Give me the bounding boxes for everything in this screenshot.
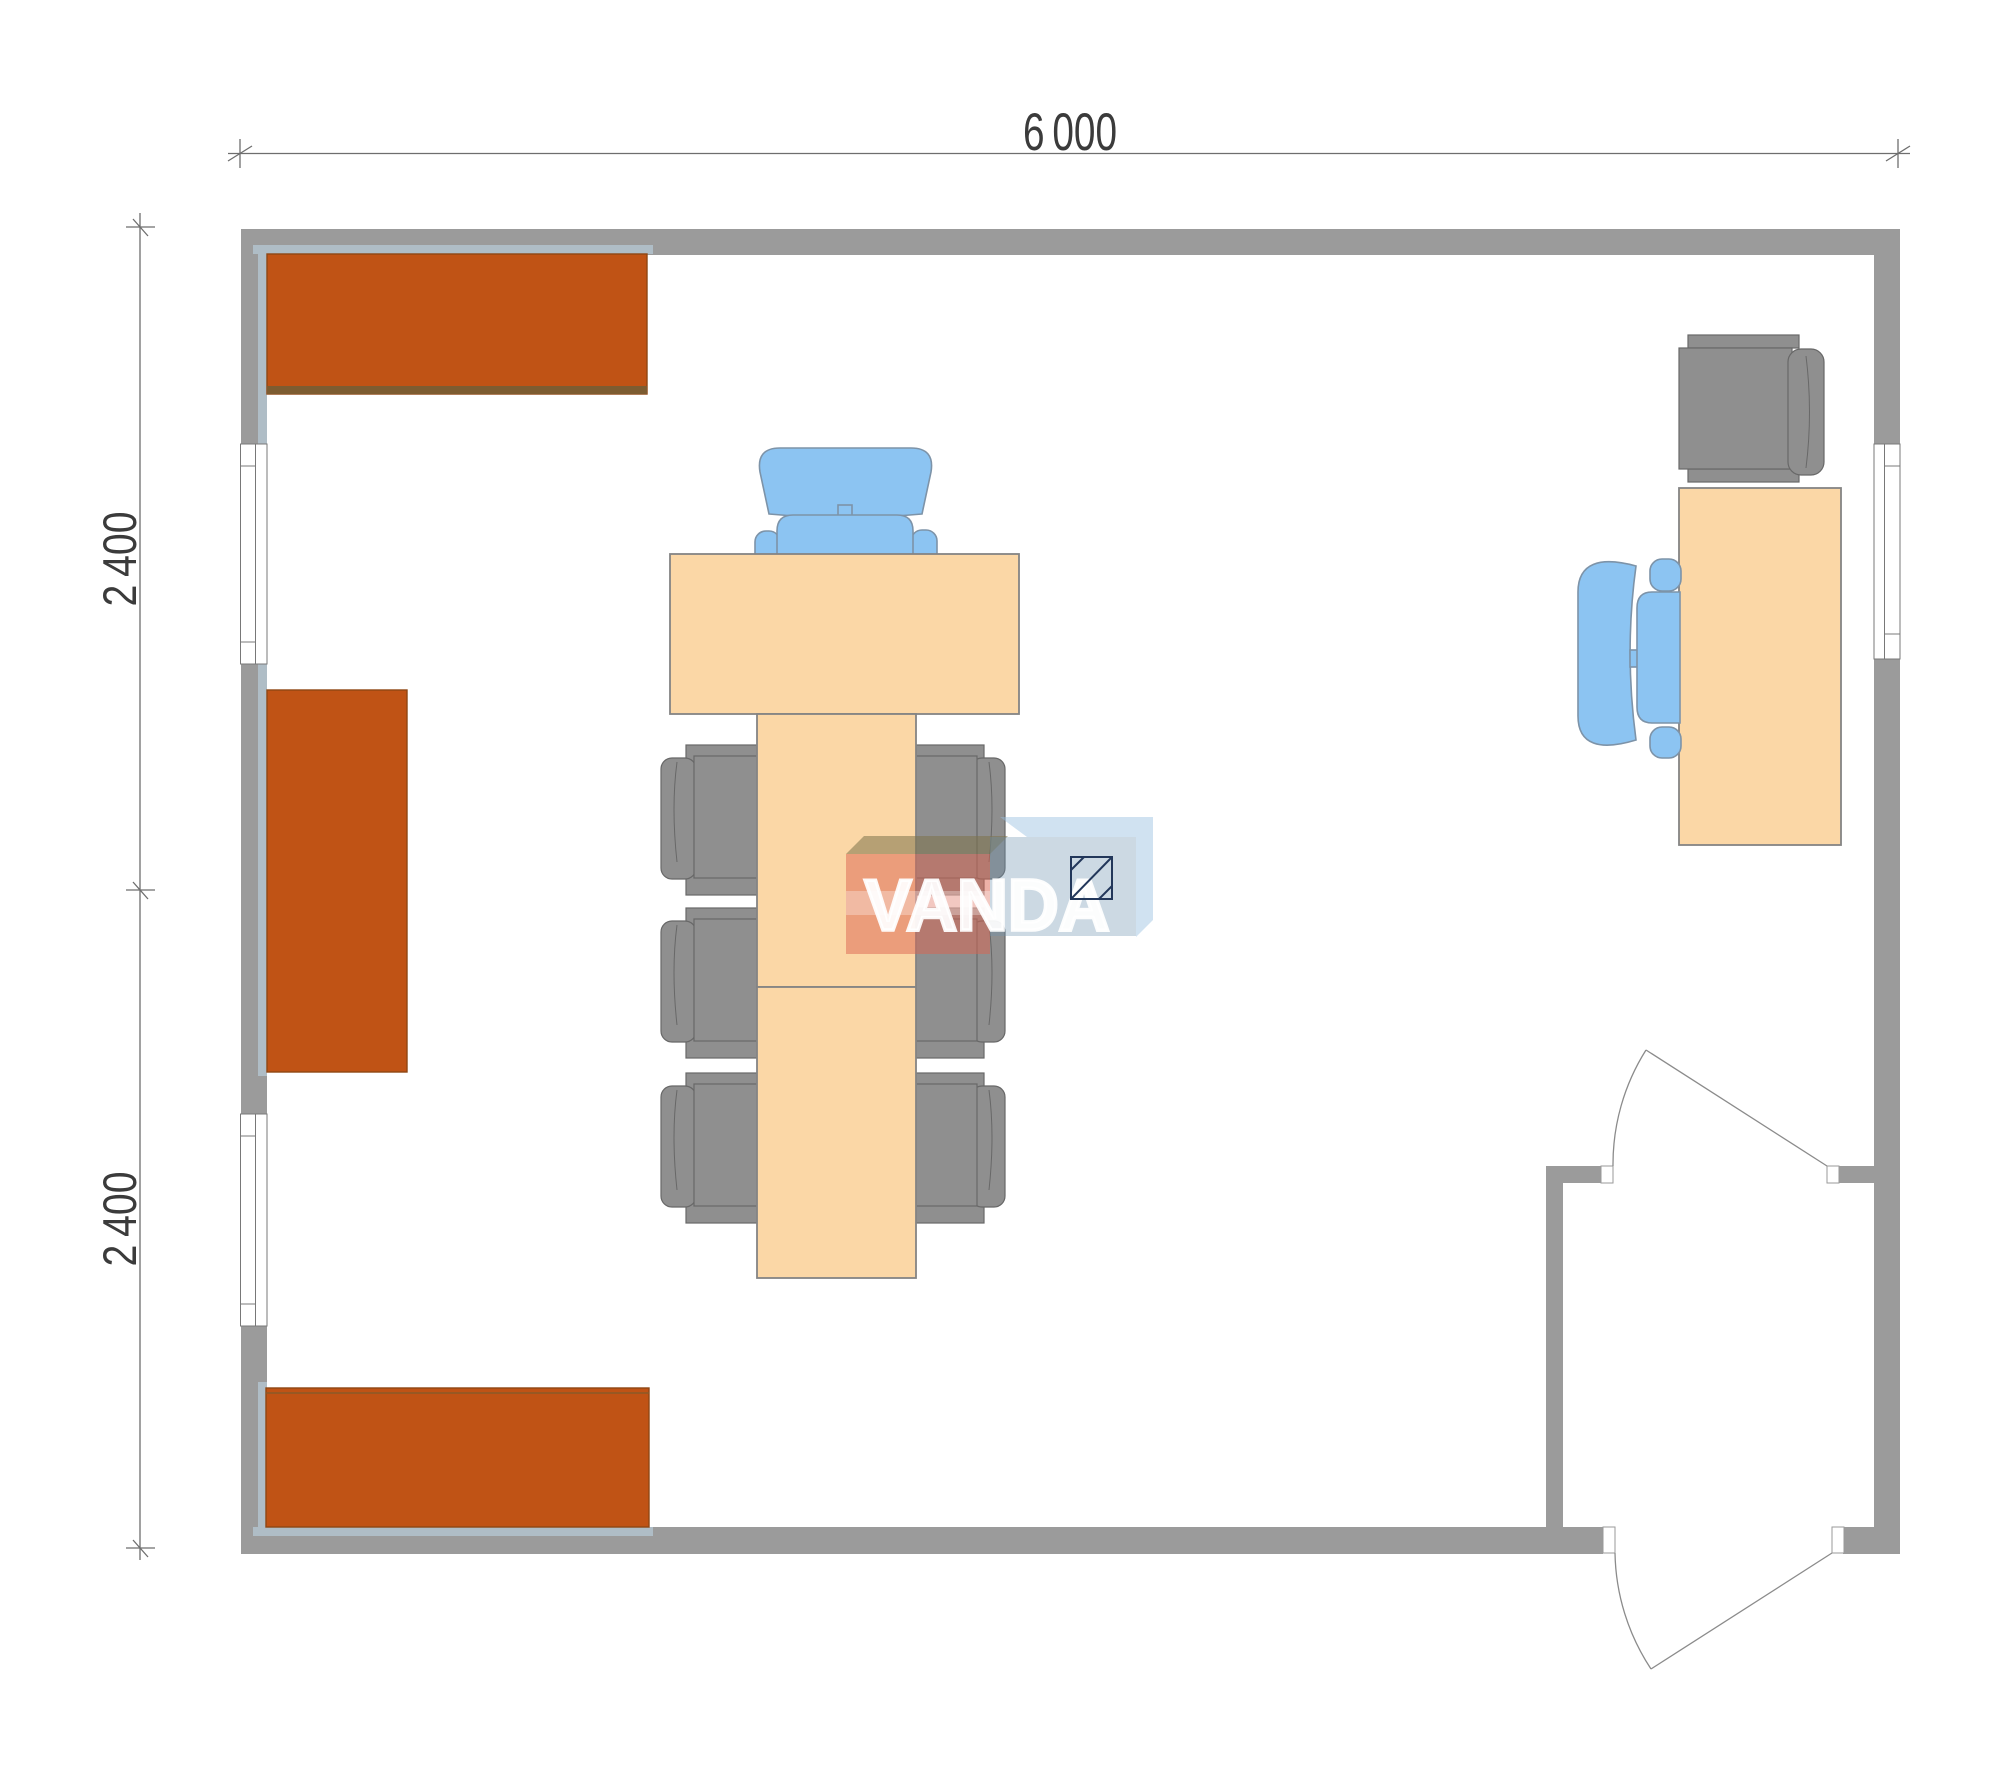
svg-text:VANDA: VANDA [865,866,1110,946]
svg-text:2 400: 2 400 [93,512,146,607]
svg-text:6 000: 6 000 [1023,103,1117,162]
svg-text:2 400: 2 400 [93,1172,146,1267]
